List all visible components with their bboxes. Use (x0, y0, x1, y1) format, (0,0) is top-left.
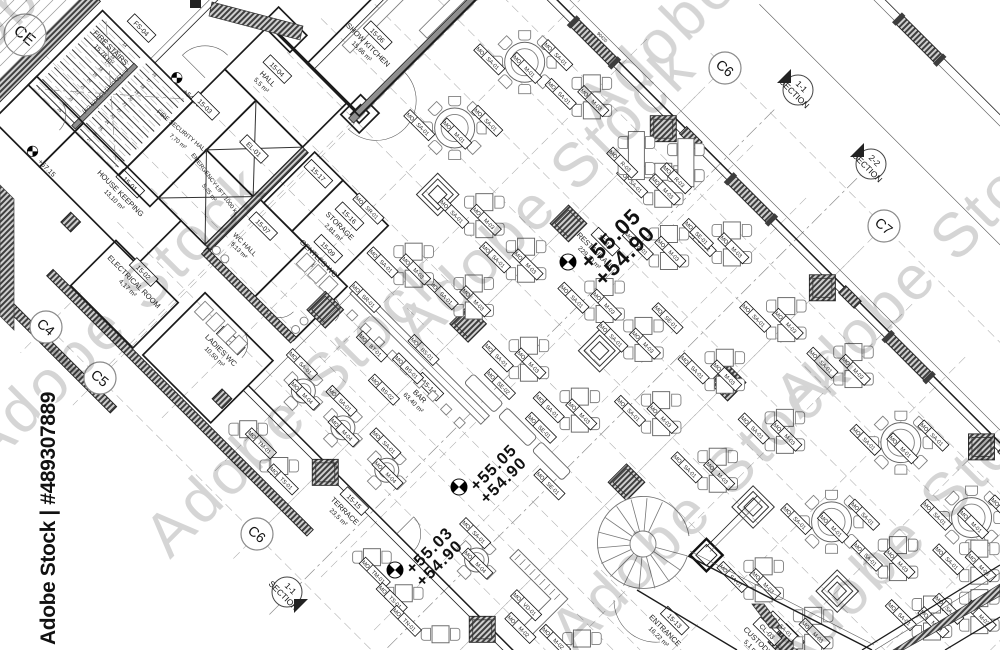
svg-text:23: 23 (109, 113, 116, 120)
svg-text:SA-01: SA-01 (627, 179, 642, 194)
svg-text:SE-02: SE-02 (495, 381, 510, 396)
svg-text:21: 21 (121, 101, 128, 108)
svg-text:SA-01: SA-01 (493, 353, 508, 368)
svg-text:20: 20 (127, 95, 134, 102)
svg-text:14: 14 (121, 42, 128, 49)
svg-text:17: 17 (146, 77, 153, 84)
svg-text:22: 22 (116, 107, 123, 114)
svg-text:20: 20 (86, 77, 93, 84)
svg-text:21: 21 (80, 83, 87, 90)
svg-text:VD-01: VD-01 (521, 602, 536, 617)
svg-text:18: 18 (97, 66, 104, 73)
svg-text:19: 19 (133, 89, 140, 96)
svg-text:TS-01: TS-01 (278, 477, 293, 492)
svg-text:19: 19 (92, 71, 99, 78)
svg-text:+57.15: +57.15 (36, 159, 56, 179)
svg-text:EL-01: EL-01 (244, 141, 262, 159)
svg-text:SA-01: SA-01 (625, 408, 640, 423)
svg-text:SE-01: SE-01 (663, 315, 678, 330)
svg-text:TN-01: TN-01 (401, 618, 416, 633)
svg-text:SR-01: SR-01 (363, 205, 378, 220)
svg-text:22: 22 (74, 89, 81, 96)
svg-text:16: 16 (151, 71, 158, 78)
svg-text:23: 23 (68, 95, 75, 102)
svg-text:BS-02: BS-02 (379, 387, 394, 402)
svg-text:SA-01: SA-01 (689, 365, 704, 380)
svg-text:18: 18 (139, 83, 146, 90)
svg-text:25: 25 (97, 125, 104, 132)
svg-text:SA-01: SA-01 (544, 404, 559, 419)
svg-text:SA-01: SA-01 (381, 440, 396, 455)
svg-text:SA-01: SA-01 (470, 530, 485, 545)
svg-text:Adobe Stock: Adobe Stock (761, 101, 1000, 430)
svg-text:SA-01: SA-01 (943, 556, 958, 571)
svg-text:27: 27 (86, 136, 93, 143)
svg-text:SE-01: SE-01 (536, 425, 551, 440)
svg-text:Adobe Stock | #489307889: Adobe Stock | #489307889 (37, 392, 60, 645)
svg-text:24: 24 (104, 119, 111, 126)
svg-text:SA-01: SA-01 (750, 314, 765, 329)
svg-text:SE-01: SE-01 (545, 481, 560, 496)
svg-text:SA-01: SA-01 (607, 334, 622, 349)
svg-text:SA-01: SA-01 (448, 210, 463, 225)
svg-text:25: 25 (56, 107, 63, 114)
